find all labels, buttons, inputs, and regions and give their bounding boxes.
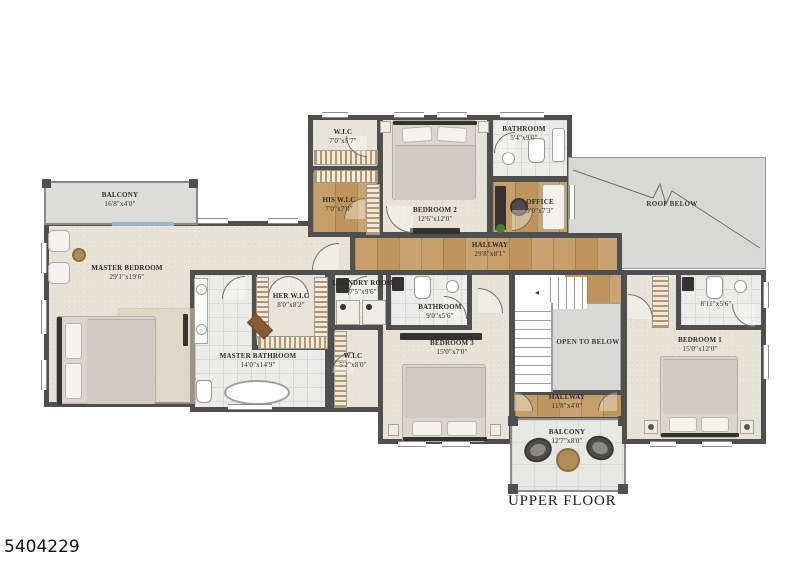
closet-shelves — [314, 150, 378, 165]
room-label-master-bathroom: MASTER BATHROOM14'0"x14'9" — [220, 352, 297, 370]
sink-icon — [446, 280, 459, 293]
window — [228, 404, 272, 410]
shower — [392, 277, 404, 291]
lounge-chair — [48, 230, 70, 252]
balcony-post — [508, 416, 518, 426]
sink-icon — [196, 324, 207, 335]
window — [763, 345, 769, 379]
sliding-glass-door — [112, 222, 174, 226]
window — [198, 218, 228, 224]
toilet-icon — [414, 276, 431, 299]
closet-shelves — [366, 184, 380, 235]
shower — [682, 277, 694, 291]
window — [322, 112, 348, 118]
window — [442, 441, 470, 447]
floor-plan: ◂ — [0, 0, 800, 565]
headboard — [661, 433, 739, 437]
room-label-bathroom-top: BATHROOM5'4"x9'0" — [502, 125, 545, 143]
floor-title: UPPER FLOOR — [508, 493, 616, 510]
room-label-her-wic: HER W.I.C8'0"x8'2" — [273, 292, 309, 310]
tv-console — [183, 314, 188, 346]
room-label-open-to-below: OPEN TO BELOW — [556, 338, 619, 347]
room-label-hallway-bottom: HALLWAY11'8"x4'0" — [549, 393, 585, 411]
bedroom2-bed — [392, 120, 476, 200]
window — [500, 112, 544, 118]
room-label-balcony-top: BALCONY16'8"x4'0" — [102, 191, 138, 209]
nightstand — [490, 424, 501, 436]
master-bed — [56, 316, 156, 404]
bathtub — [224, 380, 290, 405]
tv-console — [410, 228, 460, 234]
window — [763, 282, 769, 308]
nightstand — [478, 121, 489, 133]
window — [437, 112, 467, 118]
room-label-laundry: LAUNDRY ROOM7'5"x9'6" — [332, 279, 393, 297]
side-table — [72, 248, 86, 262]
room-label-master-bedroom: MASTER BEDROOM29'1"x19'6" — [91, 264, 162, 282]
room-label-bathroom-right: 8'11"x5'6" — [701, 300, 732, 309]
bedroom1-bed — [660, 356, 738, 438]
room-label-wic-top: W.I.C7'0"x5'7" — [329, 128, 357, 146]
room-label-his-wic: HIS W.I.C7'0"x7'0" — [322, 196, 355, 214]
stairs-lower-run — [515, 303, 553, 392]
lounge-chair — [48, 262, 70, 284]
stairs-block: ◂ — [510, 270, 626, 395]
room-label-bedroom-3: BEDROOM 315'0"x7'0" — [430, 339, 474, 357]
balcony-post — [618, 484, 628, 494]
closet-shelves — [314, 170, 378, 183]
plant-icon — [496, 224, 505, 233]
window — [394, 112, 424, 118]
closet-shelves — [258, 336, 328, 349]
closet-shelves — [652, 276, 669, 328]
window — [41, 243, 47, 273]
sink-icon — [502, 152, 515, 165]
room-label-bathroom-mid: BATHROOM9'0"x5'6" — [418, 303, 461, 321]
nightstand — [740, 420, 754, 434]
window — [650, 441, 676, 447]
shower — [552, 128, 565, 162]
room-label-bedroom-2: BEDROOM 212'6"x12'0" — [413, 206, 457, 224]
headboard — [393, 121, 477, 125]
window — [268, 218, 298, 224]
room-label-hallway-main: HALLWAY29'8"x8'1" — [472, 241, 508, 259]
room-label-bedroom-1: BEDROOM 115'0"x12'0" — [678, 336, 722, 354]
dryer — [362, 300, 386, 325]
patio-table — [556, 448, 580, 472]
balcony-post — [189, 179, 198, 188]
stair-direction-arrow-icon: ◂ — [535, 288, 539, 297]
window — [569, 185, 575, 219]
headboard — [57, 317, 62, 405]
nightstand — [388, 424, 399, 436]
open-to-below-area — [551, 303, 621, 392]
toilet-icon — [196, 380, 212, 403]
room-label-wic-mid: W.I.C5'2"x8'0" — [339, 352, 367, 370]
washer — [336, 300, 360, 325]
window — [41, 360, 47, 390]
nightstand — [380, 121, 391, 133]
nightstand — [644, 420, 658, 434]
toilet-icon — [706, 276, 723, 299]
window — [41, 300, 47, 334]
closet-shelves — [314, 277, 328, 339]
window — [702, 441, 732, 447]
sink-icon — [734, 280, 747, 293]
bedroom3-bed — [402, 364, 486, 442]
photo-id: 5404229 — [4, 537, 80, 557]
sink-icon — [196, 284, 207, 295]
balcony-post — [42, 179, 51, 188]
window — [398, 441, 426, 447]
room-label-office: OFFICE9'0"x7'3" — [526, 198, 554, 216]
room-label-balcony-bottom: BALCONY12'7"x8'0" — [549, 428, 585, 446]
room-label-roof-below: ROOF BELOW — [646, 200, 697, 209]
